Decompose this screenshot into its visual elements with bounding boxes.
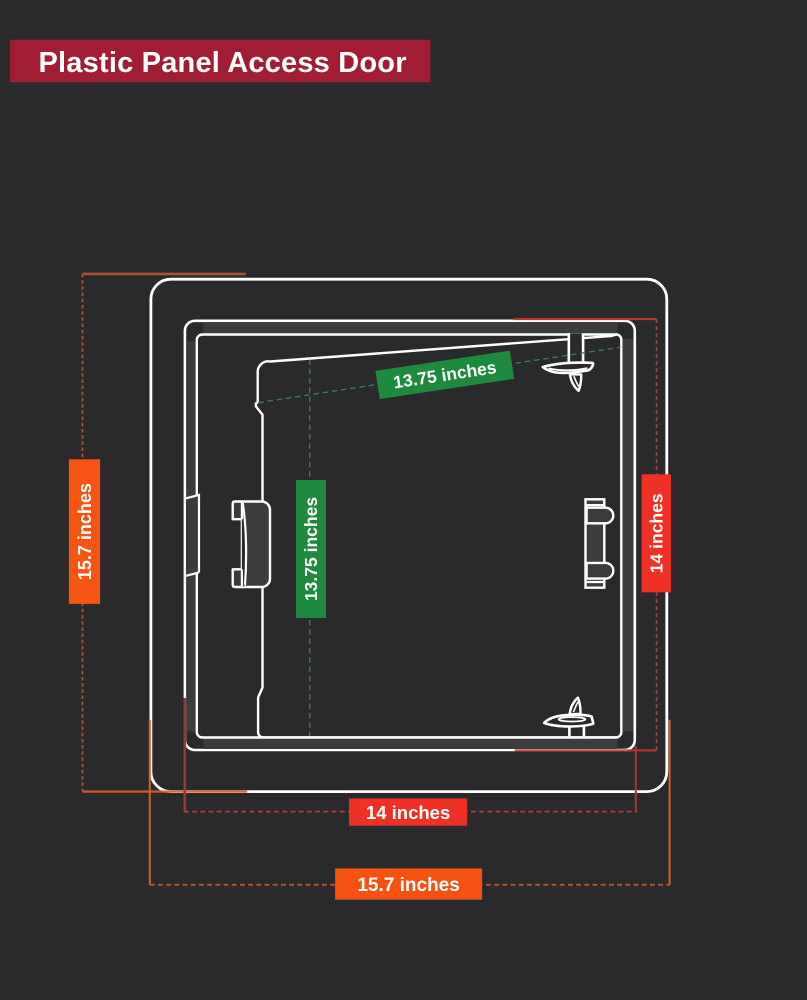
svg-text:13.75 inches: 13.75 inches [301,497,321,601]
svg-text:Plastic Panel Access Door: Plastic Panel Access Door [39,47,407,79]
svg-text:14 inches: 14 inches [646,493,666,573]
svg-text:15.7 inches: 15.7 inches [357,875,459,896]
svg-text:15.7 inches: 15.7 inches [75,483,95,580]
svg-text:14 inches: 14 inches [366,802,450,823]
